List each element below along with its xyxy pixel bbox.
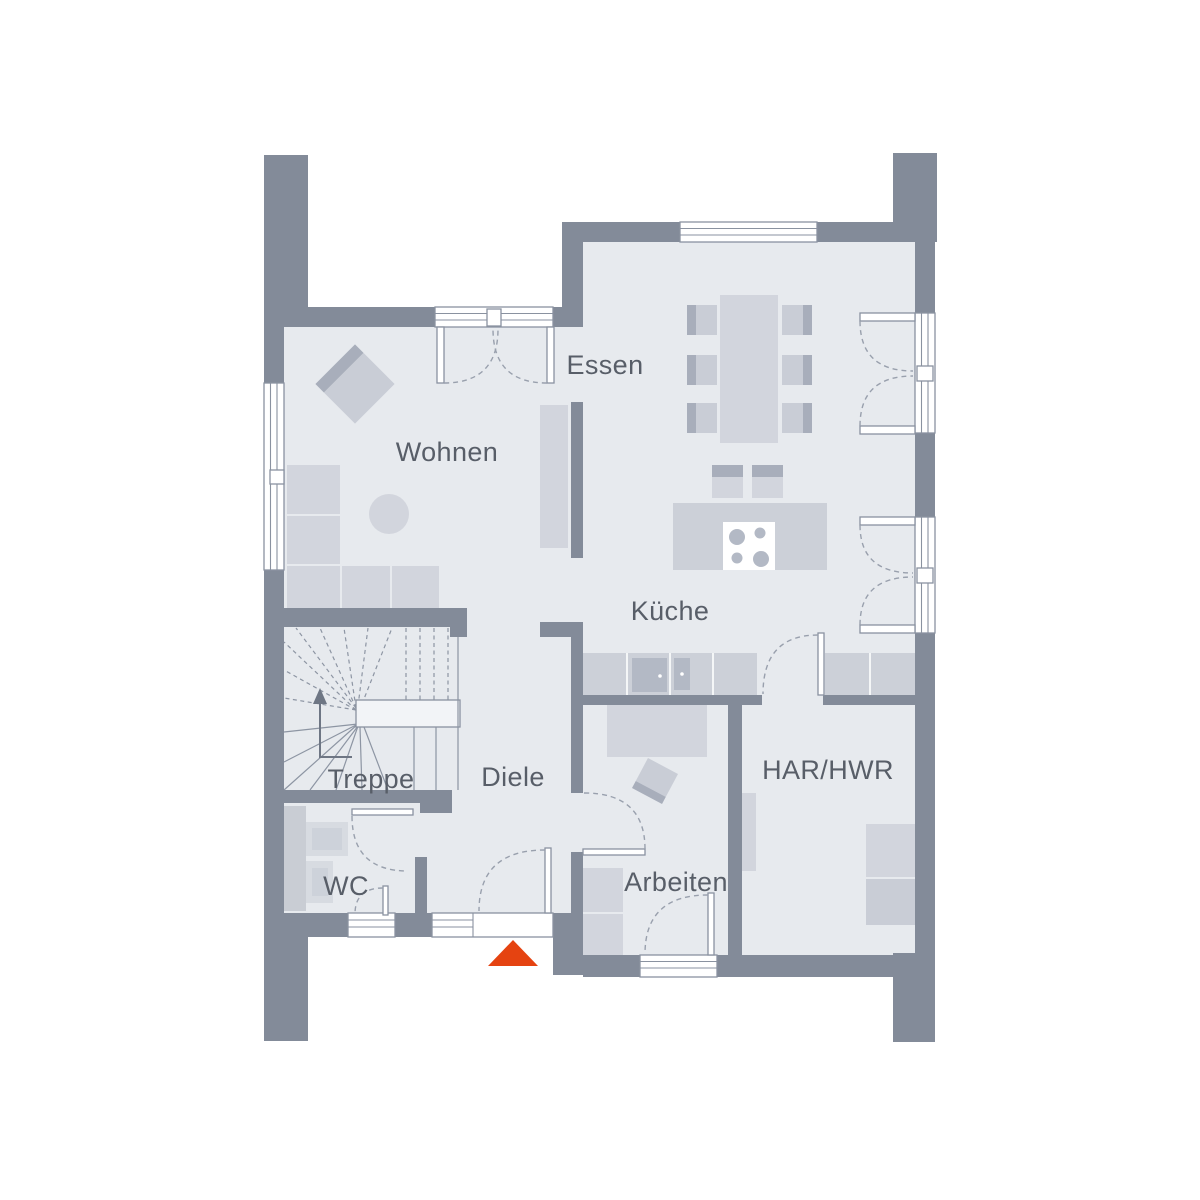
door-leaf	[352, 809, 413, 815]
wall-segment	[264, 327, 284, 383]
door-handle	[917, 366, 933, 381]
washer	[866, 824, 915, 877]
bookshelf	[583, 868, 623, 912]
wall-segment	[583, 222, 680, 242]
dining-chairs-right	[782, 305, 812, 433]
wall-segment	[450, 627, 467, 637]
wall-segment	[893, 153, 937, 242]
room-label-kueche: Küche	[631, 596, 710, 626]
wall-segment	[728, 697, 742, 977]
wc-vanity	[284, 806, 306, 911]
coffee-table	[369, 494, 409, 534]
entrance-marker	[488, 940, 538, 966]
dining-table-set	[687, 295, 812, 443]
wall-segment	[415, 857, 427, 915]
radiator	[742, 793, 756, 871]
kitchen-counter-right	[825, 653, 915, 695]
wall-segment	[583, 955, 640, 977]
wall-segment	[571, 622, 583, 793]
door-leaf	[545, 848, 551, 913]
wall-segment	[264, 155, 308, 327]
tv-sideboard	[540, 405, 568, 548]
kitchen-sink	[632, 658, 667, 692]
dining-chairs-left	[687, 305, 717, 433]
wall-segment	[283, 913, 348, 937]
window-handle	[270, 470, 284, 484]
door-leaf	[708, 893, 714, 955]
wall-segment	[420, 790, 452, 813]
wall-segment	[717, 955, 915, 977]
door-handle	[487, 309, 501, 326]
window-living-left	[264, 383, 284, 570]
wall-segment	[915, 633, 935, 953]
stair-landing	[356, 700, 460, 727]
window-dining-top	[680, 222, 817, 242]
wall-segment	[915, 433, 935, 517]
wall-segment	[308, 307, 435, 327]
door-handle	[917, 568, 933, 583]
tv-partition-wall	[571, 402, 583, 558]
door-leaf	[860, 625, 915, 633]
room-label-wc: WC	[323, 871, 369, 901]
wall-segment	[823, 695, 915, 705]
room-label-wohnen: Wohnen	[396, 437, 498, 467]
door-leaf	[818, 633, 824, 695]
dryer	[866, 879, 915, 925]
room-label-arbeiten: Arbeiten	[624, 867, 728, 897]
room-label-har-hwr: HAR/HWR	[762, 755, 894, 785]
door-leaf	[860, 517, 915, 525]
bar-stool	[752, 465, 783, 477]
dining-table	[720, 295, 778, 443]
wall-segment	[395, 913, 432, 937]
wall-segment	[562, 222, 583, 327]
door-leaf	[547, 327, 554, 383]
wall-segment	[264, 608, 467, 627]
room-label-treppe: Treppe	[328, 764, 415, 794]
wall-segment	[817, 222, 893, 242]
window-wc	[348, 913, 395, 937]
room-label-essen: Essen	[566, 350, 643, 380]
door-leaf	[583, 849, 645, 855]
floor-plan-drawing: Essen Wohnen Küche Treppe Diele WC Arbei…	[0, 0, 1200, 1200]
kitchen-counter	[583, 653, 757, 695]
desk	[607, 705, 707, 757]
wall-segment	[571, 852, 583, 913]
bar-stool	[712, 465, 743, 477]
floor-plan-canvas: Essen Wohnen Küche Treppe Diele WC Arbei…	[0, 0, 1200, 1200]
wall-segment	[553, 913, 583, 975]
window-office-bottom	[640, 955, 717, 977]
door-leaf	[437, 327, 444, 383]
door-leaf	[383, 886, 388, 915]
wall-segment	[915, 242, 935, 313]
door-leaf	[860, 426, 915, 434]
room-label-diele: Diele	[481, 762, 545, 792]
bookshelf	[583, 914, 623, 957]
door-leaf	[860, 313, 915, 321]
